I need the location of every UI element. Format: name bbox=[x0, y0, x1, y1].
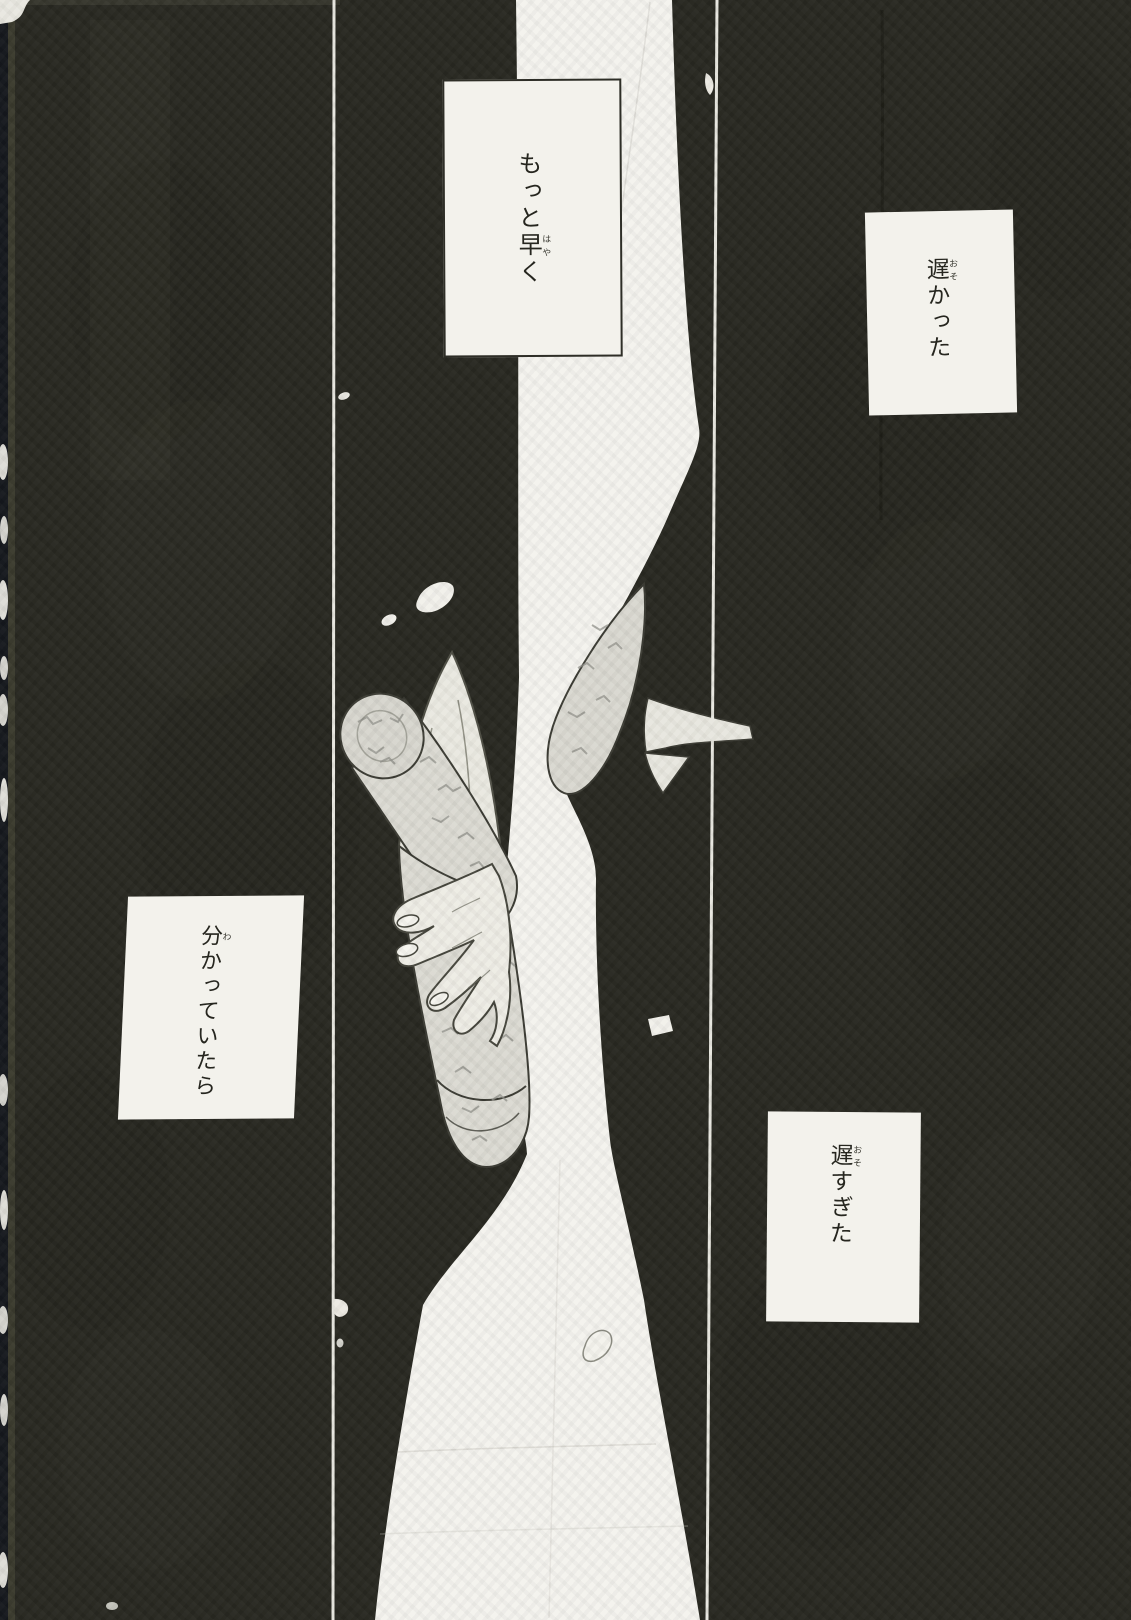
caption-text-top-right: 遅おそかった bbox=[922, 211, 959, 362]
caption-segment: かっていたら bbox=[190, 949, 222, 1099]
caption-box-bottom-right: 遅おそすぎた bbox=[766, 1111, 921, 1322]
caption-text-top-center: もっと早はやく bbox=[514, 81, 550, 286]
caption-segment: すぎた bbox=[825, 1169, 852, 1247]
caption-furigana: はや bbox=[540, 232, 550, 259]
caption-text-middle-left: 分わかっていたら bbox=[191, 896, 233, 1099]
caption-segment: もっと bbox=[514, 151, 542, 232]
caption-ruby: 遅おそ bbox=[826, 1143, 852, 1169]
caption-ruby: 分わ bbox=[196, 924, 222, 949]
caption-ruby: 遅おそ bbox=[922, 257, 949, 284]
petal bbox=[337, 1339, 344, 1348]
caption-kanji: 遅 bbox=[826, 1143, 852, 1169]
left-panel-divider bbox=[333, 0, 334, 1620]
caption-box-middle-left: 分わかっていたら bbox=[118, 895, 304, 1119]
caption-furigana: わ bbox=[220, 924, 231, 949]
caption-box-top-center: もっと早はやく bbox=[442, 79, 622, 358]
caption-furigana: おそ bbox=[947, 257, 958, 283]
caption-box-top-right: 遅おそかった bbox=[865, 209, 1017, 415]
caption-text-bottom-right: 遅おそすぎた bbox=[826, 1112, 861, 1247]
manga-page: もっと早はやく 遅おそかった 分わかっていたら 遅おそすぎた bbox=[0, 0, 1131, 1620]
caption-kanji: 遅 bbox=[922, 257, 949, 284]
caption-ruby: 早はや bbox=[514, 232, 542, 259]
caption-furigana: おそ bbox=[851, 1143, 861, 1169]
caption-kanji: 早 bbox=[514, 232, 542, 259]
caption-segment: かった bbox=[922, 283, 950, 362]
caption-segment: く bbox=[514, 259, 542, 286]
caption-kanji: 分 bbox=[196, 924, 222, 949]
